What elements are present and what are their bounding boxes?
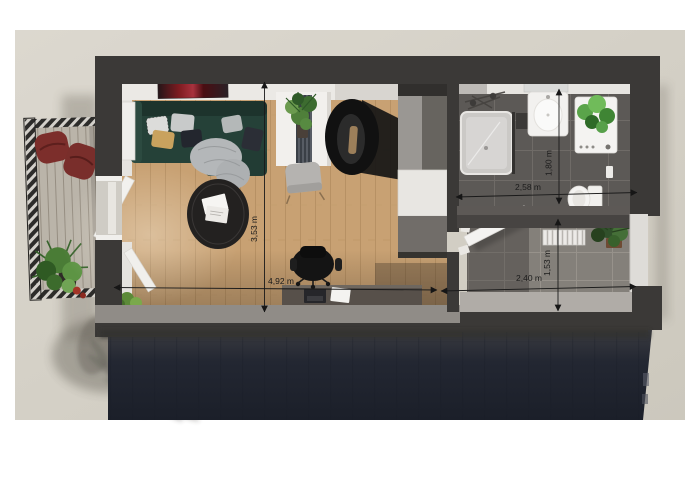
bath-mat bbox=[516, 113, 528, 129]
wall-left-lower bbox=[95, 240, 122, 315]
wall-hall-bottom-cut-face bbox=[460, 292, 648, 312]
wall-artwork bbox=[158, 82, 228, 98]
balcony-door-opening bbox=[96, 176, 122, 240]
wall-right bbox=[630, 56, 660, 216]
bathroom bbox=[459, 76, 632, 212]
desk bbox=[282, 285, 422, 307]
sink bbox=[528, 92, 568, 136]
dimension-label-bathroom-width: 2,58 m bbox=[515, 182, 541, 192]
wall-divider bbox=[447, 56, 459, 232]
dimension-label-hallway-depth: 1,53 m bbox=[542, 250, 552, 276]
kitchen-block bbox=[398, 82, 447, 258]
wall-hall-bottom bbox=[460, 312, 648, 332]
facade-detail bbox=[643, 373, 649, 386]
wall-right-hallway-face bbox=[630, 214, 648, 294]
faucet bbox=[546, 95, 550, 99]
floor-plan-svg: 3,53 m 4,92 m 2,58 m 1,80 m 1,53 m 2,40 … bbox=[0, 0, 700, 495]
toilet-paper-holder bbox=[606, 166, 613, 178]
facade-detail bbox=[642, 394, 648, 404]
wall-bottom-cut-face bbox=[95, 305, 462, 323]
washing-machine bbox=[575, 95, 617, 153]
kitchen-cabinet-dark bbox=[422, 96, 447, 170]
sideboard bbox=[122, 102, 135, 160]
shoe-bench bbox=[543, 230, 585, 245]
dimension-label-living-width: 4,92 m bbox=[268, 276, 294, 286]
laptop bbox=[304, 289, 326, 303]
wall-left-upper bbox=[95, 56, 122, 176]
shower-glass bbox=[512, 112, 515, 174]
coffee-table bbox=[187, 179, 249, 249]
wall-corner-block bbox=[632, 286, 662, 330]
floor-plan-image: 3,53 m 4,92 m 2,58 m 1,80 m 1,53 m 2,40 … bbox=[0, 0, 700, 495]
wall-top bbox=[95, 56, 660, 84]
kitchen-base bbox=[398, 216, 447, 254]
wall-facade-blend bbox=[100, 330, 650, 338]
kitchen-cabinet-light bbox=[398, 96, 422, 170]
sink-drain bbox=[547, 114, 550, 117]
armrest bbox=[290, 258, 297, 271]
dimension-label-living-depth: 3,53 m bbox=[249, 216, 259, 242]
building-facade bbox=[108, 330, 652, 420]
wall-divider-stub bbox=[447, 252, 459, 312]
kitchen-counter bbox=[398, 170, 447, 216]
dimension-label-bathroom-depth: 1,80 m bbox=[544, 150, 554, 176]
shower-drain bbox=[484, 146, 488, 150]
shower bbox=[461, 112, 515, 174]
armrest bbox=[335, 258, 342, 271]
dimension-label-hallway-width: 2,40 m bbox=[516, 273, 542, 283]
